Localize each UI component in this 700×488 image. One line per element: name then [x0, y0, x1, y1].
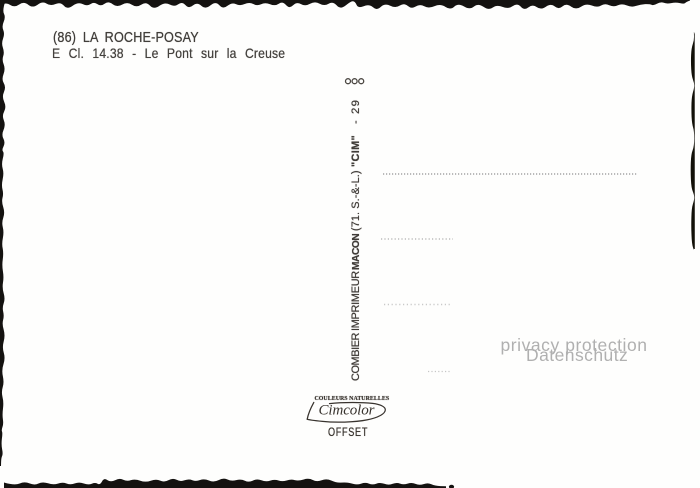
svg-text:Cimcolor: Cimcolor [319, 402, 375, 418]
